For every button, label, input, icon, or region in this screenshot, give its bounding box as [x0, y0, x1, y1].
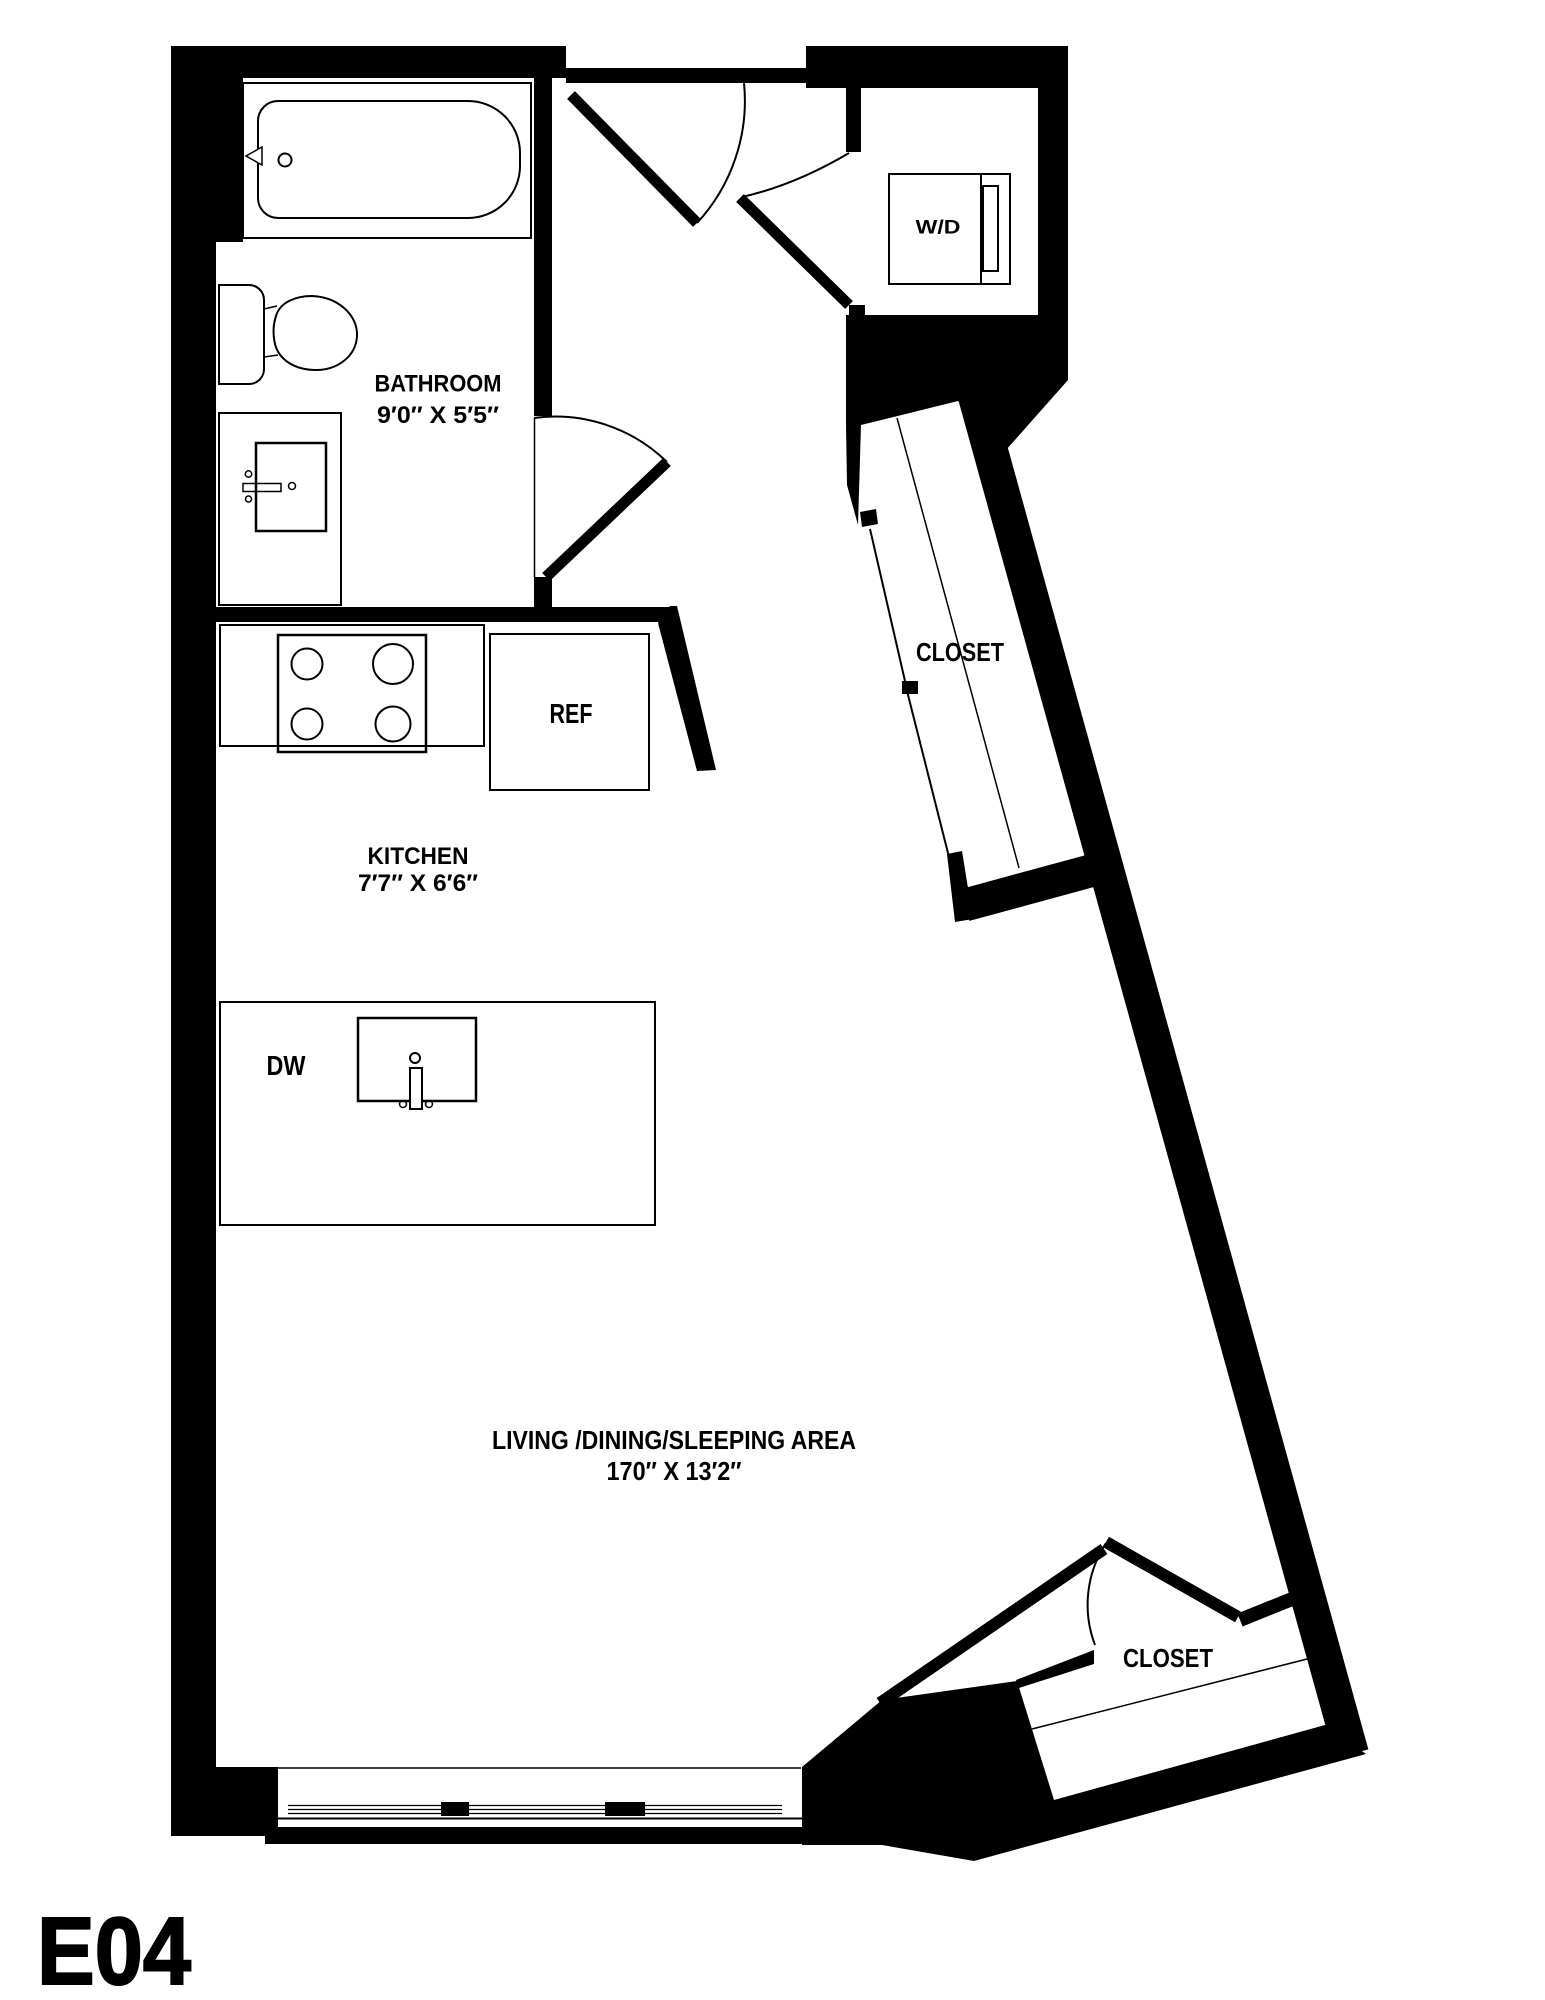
svg-text:CLOSET: CLOSET [916, 637, 1004, 667]
svg-text:7′7″ X 6′6″: 7′7″ X 6′6″ [358, 870, 479, 897]
svg-text:CLOSET: CLOSET [1123, 1643, 1213, 1673]
svg-text:9′0″ X 5′5″: 9′0″ X 5′5″ [377, 402, 500, 429]
svg-text:BATHROOM: BATHROOM [375, 371, 502, 398]
svg-text:170″ X 13′2″: 170″ X 13′2″ [607, 1456, 742, 1486]
svg-text:E04: E04 [37, 1898, 191, 2000]
svg-text:LIVING /DINING/SLEEPING AREA: LIVING /DINING/SLEEPING AREA [492, 1425, 856, 1455]
svg-text:W/D: W/D [916, 218, 961, 239]
svg-text:KITCHEN: KITCHEN [368, 843, 469, 870]
svg-text:REF: REF [550, 698, 593, 729]
svg-text:DW: DW [267, 1050, 306, 1081]
